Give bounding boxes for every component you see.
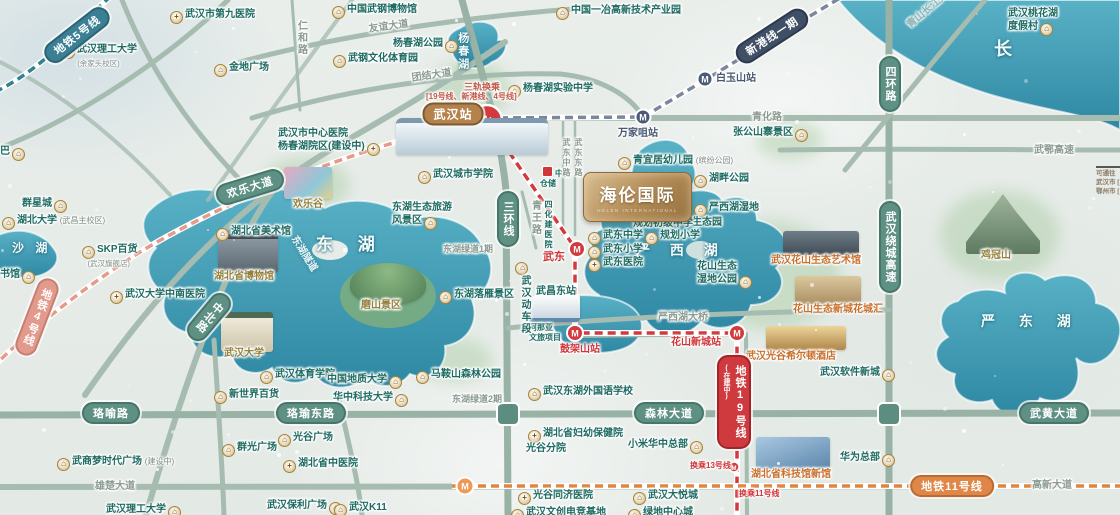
building-icon: ⌂ [82,246,95,259]
building-icon: ⌂ [57,458,70,471]
building-icon: ⌂ [618,157,631,170]
poi-label: ⌂SKP百货(武汉旗舰店) [80,244,138,268]
building-icon: ⌂ [528,388,541,401]
poi-label: ⌂群光广场 [220,442,277,457]
poi-label: 华为总部⌂ [840,452,897,467]
metro-line-pill: 地铁19号线(在建中) [717,355,751,449]
svg-text:M: M [701,75,709,85]
road-pill: 森林大道 [634,402,704,424]
metro-line-pill: 地铁11号线 [910,475,994,497]
building-icon: ⌂ [2,217,15,230]
building-icon: ⌂ [333,55,346,68]
poi-label: ⌂武汉体育学院 [258,369,335,384]
building-icon: ⌂ [739,276,752,289]
road-pill: 武汉绕城高速 [879,201,901,293]
poi-label: ⌂光谷广场 [276,432,333,447]
poi-label: 武汉软件新城⌂ [820,367,897,382]
building-icon: ⌂ [628,509,641,515]
building-icon: ⌂ [12,148,25,161]
hospital-icon: + [528,430,541,443]
road-label: 武东中路 [561,138,571,178]
road-pill: 珞喻路 [82,402,140,424]
project-name: 海伦国际 [600,181,676,206]
station-label: 换乘11号线 [739,489,779,499]
poi-label: +武汉大学中南医院 [108,289,205,304]
poi-label: 四化建医院 [543,200,553,250]
station-marker-wudong: M [569,241,585,257]
svg-text:M: M [571,329,579,339]
poi-label: 花山生态新城花城汇 [793,304,883,317]
building-icon: ⌂ [445,40,458,53]
svg-text:M: M [639,113,647,123]
project-name-english: HELEN INTERNATIONAL [597,208,677,213]
poi-label: ⌂绿地中心城 [626,507,693,515]
building-icon: ⌂ [690,441,703,454]
poi-label: 阿那亚文旅项目 [529,323,561,343]
road-label: 东湖绿道1期 [443,244,493,255]
poi-label: ⌂湖北省美术馆 [214,226,291,241]
station-marker-line11: M [457,478,474,495]
poi-label: +湖北省妇幼保健院光谷分院 [526,428,623,456]
poi-label: ⌂武汉城市学院 [416,169,493,184]
poi-label: ⌂武汉大悦城 [631,490,698,505]
svg-text:M: M [461,482,469,492]
poi-label: 杨春湖公园⌂ [393,38,460,53]
poi-label: 群星城⌂ [22,198,69,213]
poi-label: 小米华中总部⌂ [628,439,705,454]
building-icon: ⌂ [633,492,646,505]
poi-label: ⌂中国一冶高新技术产业园 [554,5,681,20]
lake-label: 长 [994,38,1012,61]
station-label: 武东 [543,251,565,265]
poi-label: ⌂武东中学 [586,230,643,245]
building-icon: ⌂ [882,369,895,382]
poi-label: 欢乐谷 [293,199,323,212]
building-icon: ⌂ [214,64,227,77]
poi-label: 武昌东站 [536,286,576,299]
hospital-icon: + [170,11,183,24]
svg-text:M: M [733,329,741,339]
building-icon: ⌂ [54,200,67,213]
poi-label: +武汉市第九医院 [168,9,255,24]
lake-yandonghu [936,273,1120,415]
poi-label: ⌂武商梦时代广场 (建设中) [55,456,174,471]
huashan-art-museum-building [783,231,859,255]
lake-label: 沙 湖 [12,241,51,256]
legend-line: 武汉市 [ [1096,179,1120,188]
legend-line: 鄂州市 [ [1096,188,1120,197]
poi-label: ⌂新世界百货 [212,389,279,404]
road-pill: 三环线 [497,191,519,247]
road-pill: 武黄大道 [1019,402,1089,424]
building-icon: ⌂ [260,371,273,384]
wuhan-station-pill: 武汉站 [422,103,483,126]
building-icon: ⌂ [439,291,452,304]
building-icon: ⌂ [511,509,524,515]
poi-label: ⌂武汉东湖外国语学校 [526,386,633,401]
poi-label: 巴⌂ [0,146,27,161]
road-label: 严西湖大桥 [658,312,708,325]
road-label: 雄楚大道 [95,481,135,494]
road-label: 青王路 [528,200,541,236]
building-icon: ⌂ [389,376,402,389]
science-museum-building [756,437,830,469]
building-icon: ⌂ [645,232,658,245]
poi-label: +湖北省中医院 [281,458,358,473]
building-icon: ⌂ [278,434,291,447]
building-icon: ⌂ [1040,23,1053,36]
station-marker-wanjiaju: M [636,110,651,125]
poi-label: 湖北省博物馆 [214,271,274,284]
building-icon: ⌂ [416,371,429,384]
building-icon: ⌂ [332,6,345,19]
road-pill: 四环路 [879,56,901,112]
building-icon: ⌂ [418,171,431,184]
building-icon: ⌂ [694,175,707,188]
poi-label: ⌂武汉文创电竞基地 [509,507,606,515]
road-label: 武东东路 [573,138,583,178]
poi-label: 华中科技大学⌂ [333,392,410,407]
moshan-hill [350,263,426,305]
poi-label: 中国地质大学⌂ [327,374,404,389]
building-icon: ⌂ [795,129,808,142]
poi-label: 武汉光谷希尔顿酒店 [746,351,836,364]
svg-text:M: M [573,245,581,255]
building-icon: ⌂ [168,506,181,515]
hospital-icon: + [588,259,601,272]
building-icon: ⌂ [334,504,347,515]
poi-label: 书馆⌂ [0,269,37,284]
svg-text:M: M [732,466,737,472]
building-icon: ⌂ [214,391,227,404]
road-label: 武鄂高速 [1034,145,1074,158]
hospital-icon: + [110,291,123,304]
building-icon: ⌂ [556,7,569,20]
legend-line: 可通往（ [1096,170,1120,179]
poi-label: 鸡冠山 [981,250,1011,263]
station-label: 花山新城站 [671,337,721,350]
map-legend: 可通往（ 武汉市 [ 鄂州市 [ [1096,166,1120,196]
poi-label: ⌂武汉K11 [332,502,387,515]
station-label: 万家咀站 [618,128,658,141]
road-label: 高新大道 [1032,480,1072,493]
station-label: 鼓架山站 [560,344,600,357]
poi-label: ⌂武钢文化体育园 [331,53,418,68]
road-label: 仁和路 [294,20,307,56]
poi-label: 武汉桃花湖度假村⌂ [1008,8,1058,36]
station-marker-gujiashan: M [567,325,583,341]
poi-label: +光谷同济医院 [516,490,593,505]
poi-label: ⌂中国武钢博物馆 [330,4,417,19]
building-icon: ⌂ [216,228,229,241]
hospital-icon: + [283,460,296,473]
huachenghui-building [795,276,861,304]
hilton-hotel-building [766,326,846,350]
hospital-icon: + [367,143,380,156]
building-icon: ⌂ [22,271,35,284]
poi-label: 武汉大学 [224,348,264,361]
project-logo: 海伦国际 HELEN INTERNATIONAL [583,172,692,222]
station-marker-baiyushan: M [698,72,713,87]
happy-valley-park [284,167,332,199]
station-label: 白玉山站 [716,73,756,86]
poi-label: 武汉花山生态艺术馆 [771,255,861,268]
store-logo-icon [542,166,553,177]
wuhan-university-gate [221,312,273,352]
road-label: 东湖绿道2期 [452,394,502,405]
building-icon: ⌂ [515,262,528,275]
poi-label: ⌂规划小学 [643,230,700,245]
poi-label: 武汉市中心医院杨春湖院区(建设中)+ [278,128,382,156]
poi-label: ⌂武汉动车段 [513,262,530,335]
poi-label: ⌂东湖落雁景区 [437,289,514,304]
lake-label: 东 湖 [316,234,385,255]
building-icon: ⌂ [424,217,437,230]
real-estate-location-map: M M M M M M M ↻ 海伦国际 HELEN INTERNATIONAL… [0,0,1120,515]
poi-label: 张公山寨景区⌂ [733,127,810,142]
poi-label: +武东医院 [586,257,643,272]
poi-label: 湖北省科技馆新馆 [751,469,831,482]
lake-label: 严 东 湖 [981,313,1081,331]
poi-label: ⌂湖畔公园 [692,173,749,188]
poi-label: 磨山景区 [361,300,401,313]
poi-label: 东湖生态旅游风景区⌂ [392,202,452,230]
poi-label: 花山生态湿地公园⌂ [697,261,754,289]
poi-label: ⌂杨春湖实验中学 [506,83,593,98]
station-label: 换乘13号线 [690,461,731,471]
poi-label: ⌂严西湖湿地生态园 [692,202,759,230]
road-label: 青化路 [752,112,782,125]
hospital-icon: + [518,492,531,505]
poi-label: ⌂青宜居幼儿园 (缤纷公园) [616,155,733,170]
poi-label: ⌂金地广场 [212,62,269,77]
station-marker-huashanxincheng: M [729,325,745,341]
building-icon: ⌂ [395,394,408,407]
building-icon: ⌂ [694,204,707,217]
building-icon: ⌂ [222,444,235,457]
transfer-note-lines: [19号线、新港线、4号线] [426,92,517,102]
poi-label: 武汉理工大学⌂ [106,504,183,515]
poi-label: ⌂湖北大学 (武昌主校区) [0,215,105,230]
road-pill: 珞瑜东路 [276,402,346,424]
poi-label: ⌂马鞍山森林公园 [414,369,501,384]
building-icon: ⌂ [882,454,895,467]
